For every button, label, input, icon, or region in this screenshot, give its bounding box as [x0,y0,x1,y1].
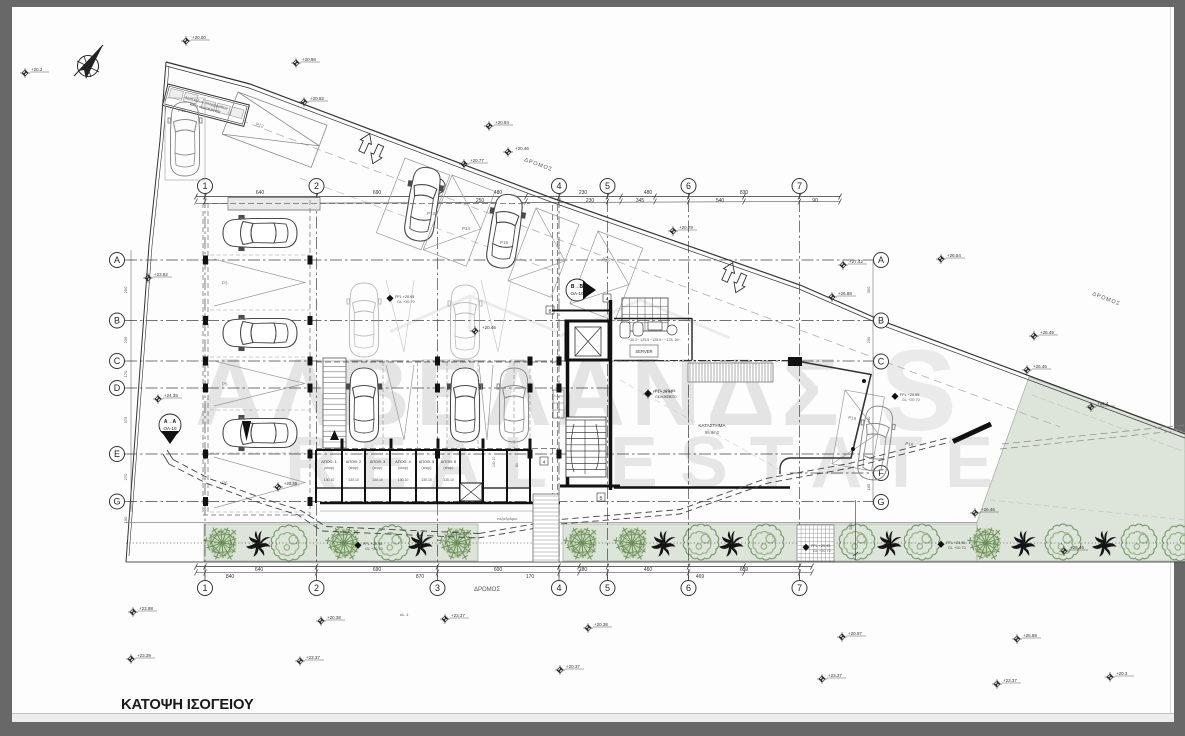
svg-text:640: 640 [255,567,264,573]
svg-text:πεζοδρόμιο: πεζοδρόμιο [497,516,518,521]
svg-text:+20.77: +20.77 [470,158,484,163]
svg-text:(shop): (shop) [373,466,383,470]
svg-text:D: D [114,383,121,393]
svg-text:5: 5 [605,181,610,191]
svg-text:4: 4 [556,181,561,191]
svg-text:345: 345 [636,198,645,204]
svg-text:B→B: B→B [571,284,584,290]
svg-text:+23.37: +23.37 [828,673,842,678]
svg-text:250: 250 [123,286,128,293]
svg-text:+23.37: +23.37 [306,655,320,660]
svg-text:P13: P13 [427,211,436,216]
svg-text:FFL +20.95: FFL +20.95 [946,541,965,545]
svg-text:+23.82: +23.82 [154,272,168,277]
svg-text:+20.39: +20.39 [284,481,298,486]
svg-text:130.10: 130.10 [372,478,383,482]
svg-text:FFL +20.95: FFL +20.95 [811,544,830,548]
svg-text:165: 165 [866,483,871,490]
svg-text:469: 469 [696,574,705,580]
svg-text:440: 440 [866,416,871,423]
svg-text:+26.46: +26.46 [981,507,995,512]
svg-text:+26.54: +26.54 [947,253,961,258]
svg-text:+20.38: +20.38 [594,622,608,627]
svg-text:+20.00: +20.00 [192,35,206,40]
svg-text:GL +20.70: GL +20.70 [902,398,920,402]
svg-text:690: 690 [373,567,382,573]
svg-text:80: 80 [515,463,519,467]
svg-text:P5: P5 [222,382,228,387]
svg-text:5: 5 [605,583,610,593]
svg-text:830: 830 [740,190,749,196]
svg-text:+20.2: +20.2 [31,67,43,72]
svg-text:ΑΠΟΘ. 3: ΑΠΟΘ. 3 [370,460,385,464]
svg-text:B: B [114,316,120,326]
svg-text:ΑΠΟΘ. 1: ΑΠΟΘ. 1 [321,460,336,464]
svg-text:1: 1 [202,583,207,593]
svg-text:FFL +20.95: FFL +20.95 [900,393,919,397]
svg-text:95.9m2: 95.9m2 [705,430,720,435]
svg-text:κλ. 1: κλ. 1 [400,612,409,617]
svg-text:230: 230 [579,190,588,196]
svg-text:130.10: 130.10 [324,478,335,482]
svg-text:+20.79: +20.79 [679,225,693,230]
svg-text:ΟA-10: ΟA-10 [163,426,177,431]
svg-text:90: 90 [812,198,818,204]
svg-text:130.10: 130.10 [443,478,454,482]
svg-text:P3: P3 [222,281,228,286]
svg-text:B: B [548,309,551,314]
svg-text:+20.3: +20.3 [1116,671,1128,676]
svg-text:7: 7 [797,583,802,593]
svg-text:+27.42: +27.42 [849,259,863,264]
svg-text:(shop): (shop) [398,466,408,470]
svg-text:FFL +20.95: FFL +20.95 [653,390,672,394]
svg-text:230: 230 [586,198,595,204]
svg-text:280: 280 [579,567,588,573]
svg-text:A: A [114,255,120,265]
svg-text:7: 7 [797,181,802,191]
svg-text:B: B [878,316,884,326]
svg-text:P1: P1 [240,416,246,421]
svg-text:+26.88: +26.88 [838,291,852,296]
svg-text:130.10: 130.10 [421,478,432,482]
svg-text:170: 170 [526,574,535,580]
svg-text:640: 640 [256,190,265,196]
svg-text:+26.49: +26.49 [1040,330,1054,335]
svg-text:+26.46: +26.46 [1070,545,1084,550]
svg-text:+20.92: +20.92 [310,96,324,101]
svg-text:ΑΠΟΘ. 6: ΑΠΟΘ. 6 [441,460,456,464]
svg-text:P4: P4 [240,216,246,221]
svg-text:+20.37: +20.37 [566,664,580,669]
svg-text:+26.46: +26.46 [1033,364,1047,369]
svg-text:+26.4: +26.4 [1097,401,1109,406]
svg-text:690: 690 [373,190,382,196]
svg-text:540: 540 [716,198,725,204]
svg-text:FFL +20.95: FFL +20.95 [363,542,382,546]
svg-text:460: 460 [644,567,653,573]
svg-text:G: G [877,497,884,507]
svg-text:G: G [113,497,120,507]
svg-text:130.10: 130.10 [348,478,359,482]
svg-text:+20.98: +20.98 [302,57,316,62]
svg-text:130.10: 130.10 [398,478,409,482]
svg-text:ΑΠΟΘ. 4: ΑΠΟΘ. 4 [395,460,410,464]
svg-text:6: 6 [686,583,691,593]
svg-text:ΚΑΤΟΨΗ ΙΣΟΓΕΙΟΥ: ΚΑΤΟΨΗ ΙΣΟΓΕΙΟΥ [121,697,254,713]
svg-text:A: A [878,255,884,265]
svg-text:+20.94: +20.94 [495,120,509,125]
svg-text:140 10: 140 10 [492,457,496,467]
svg-text:GL +20.70: GL +20.70 [397,300,415,304]
svg-text:(shop): (shop) [422,466,432,470]
svg-text:C: C [878,357,885,367]
svg-text:GL +20.70: GL +20.70 [655,395,673,399]
svg-text:+20.46: +20.46 [482,325,496,330]
svg-text:+20.97: +20.97 [848,631,862,636]
svg-text:840: 840 [226,574,235,580]
svg-text:270: 270 [123,473,128,480]
svg-text:235: 235 [866,336,871,343]
svg-text:350: 350 [866,286,871,293]
svg-text:GL +20.70: GL +20.70 [813,549,831,553]
svg-text:190: 190 [123,516,128,523]
svg-text:+23.39: +23.39 [137,653,151,658]
svg-text:E: E [114,449,120,459]
svg-text:P14: P14 [462,226,471,231]
svg-text:600: 600 [494,567,503,573]
svg-text:ΚΑΤΑΣΤΗΜΑ: ΚΑΤΑΣΤΗΜΑ [698,423,726,428]
svg-text:+24.35: +24.35 [164,393,178,398]
svg-text:GL +20.70: GL +20.70 [948,546,966,550]
svg-text:480: 480 [644,190,653,196]
svg-text:C: C [114,356,121,366]
svg-text:SERVER: SERVER [635,349,652,354]
svg-text:(shop): (shop) [444,466,454,470]
svg-text:ΑΠΟΘ. 2: ΑΠΟΘ. 2 [346,460,361,464]
svg-text:280: 280 [848,523,853,530]
svg-text:ΔΡΟΜΟΣ: ΔΡΟΜΟΣ [474,587,500,593]
svg-text:375: 375 [123,416,128,423]
svg-text:P11: P11 [178,108,186,113]
svg-text:B: B [599,496,602,501]
svg-text:3: 3 [435,583,440,593]
svg-text:6: 6 [686,181,691,191]
svg-text:ΑΠΟΘ. 5: ΑΠΟΘ. 5 [419,460,434,464]
svg-text:−30.2− 125.5 −125.5− −178. 26−: −30.2− 125.5 −125.5− −178. 26− [628,338,681,342]
svg-text:+23.98: +23.98 [139,606,153,611]
svg-text:P15: P15 [500,240,509,245]
svg-text:870: 870 [416,574,425,580]
svg-text:+25.88: +25.88 [1023,633,1037,638]
svg-text:+23.37: +23.37 [451,613,465,618]
svg-text:170: 170 [123,370,128,377]
svg-text:+20.38: +20.38 [327,615,341,620]
svg-text:2: 2 [314,181,319,191]
svg-text:2: 2 [314,583,319,593]
svg-text:A→A: A→A [164,419,177,425]
svg-text:+20.46: +20.46 [515,146,529,151]
svg-text:ΟA-10: ΟA-10 [570,291,584,296]
svg-text:(shop): (shop) [349,466,359,470]
svg-text:FFL +20.95: FFL +20.95 [395,295,414,299]
svg-text:4: 4 [556,583,561,593]
svg-text:+23.37: +23.37 [1003,678,1017,683]
svg-text:P2: P2 [240,316,246,321]
svg-text:1: 1 [202,181,207,191]
svg-text:235: 235 [123,336,128,343]
svg-text:(shop): (shop) [324,466,334,470]
svg-text:639: 639 [740,567,749,573]
svg-text:GL +20.70: GL +20.70 [365,547,383,551]
